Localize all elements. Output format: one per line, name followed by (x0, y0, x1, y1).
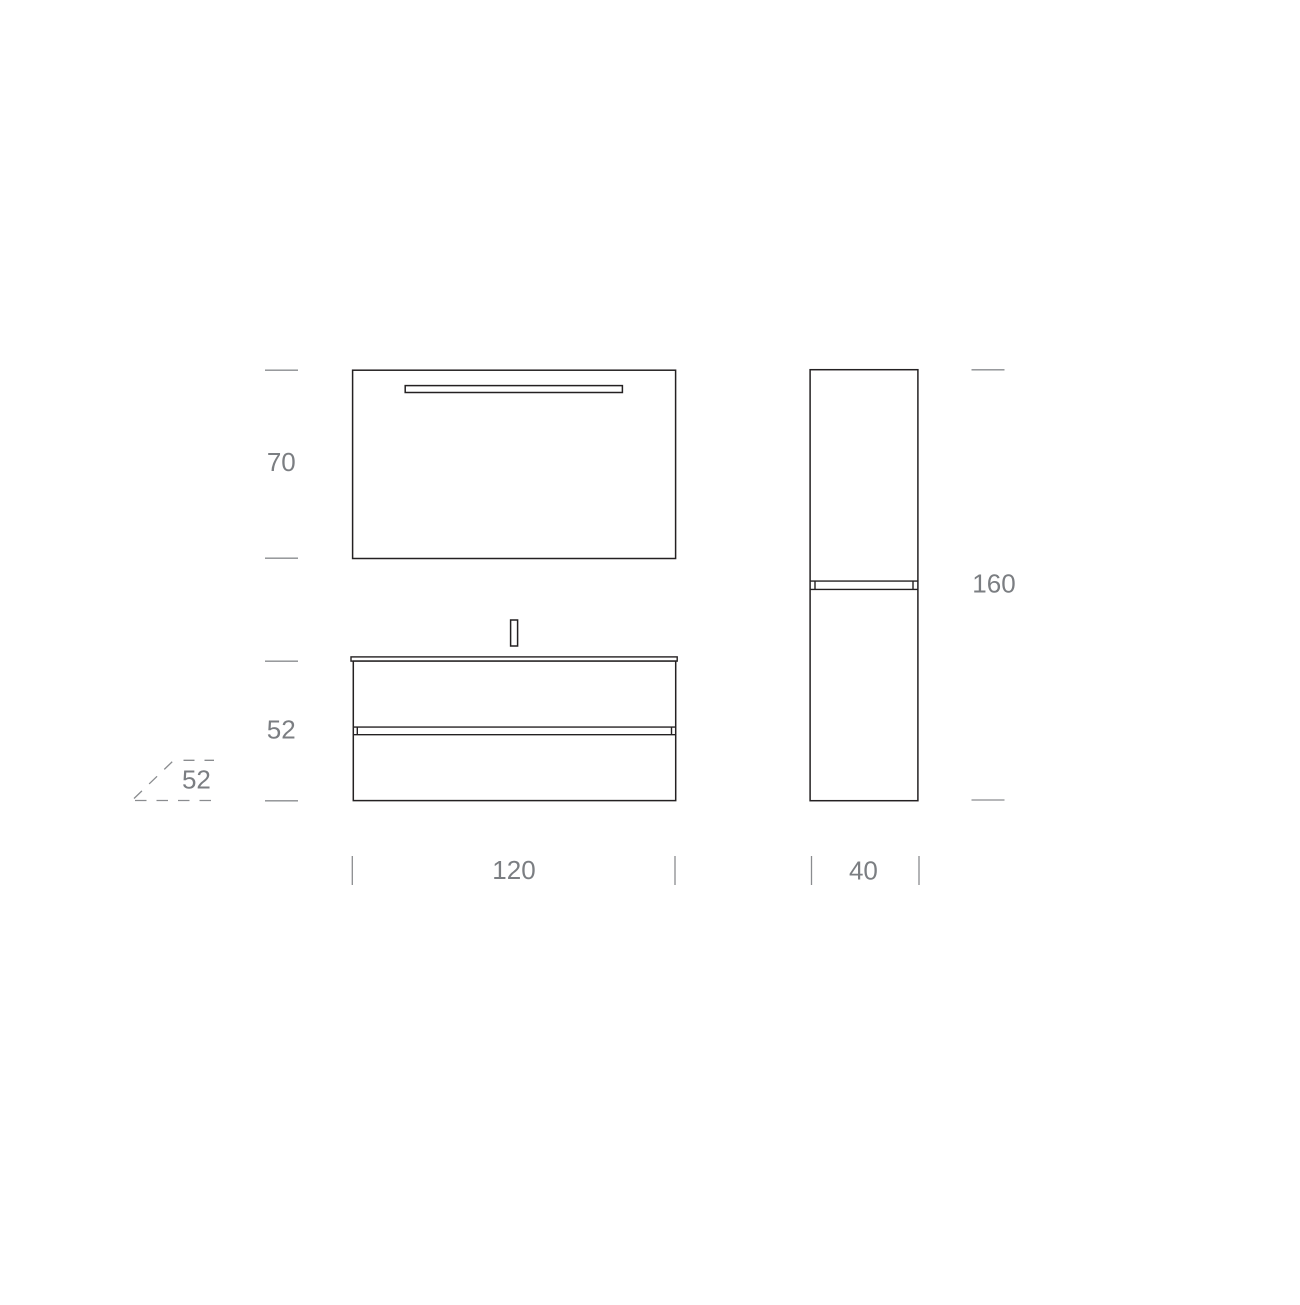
svg-text:40: 40 (849, 855, 878, 885)
svg-text:120: 120 (492, 855, 535, 885)
svg-text:160: 160 (972, 569, 1015, 599)
svg-text:70: 70 (267, 447, 296, 477)
svg-text:52: 52 (267, 714, 296, 744)
svg-text:52: 52 (182, 765, 211, 795)
